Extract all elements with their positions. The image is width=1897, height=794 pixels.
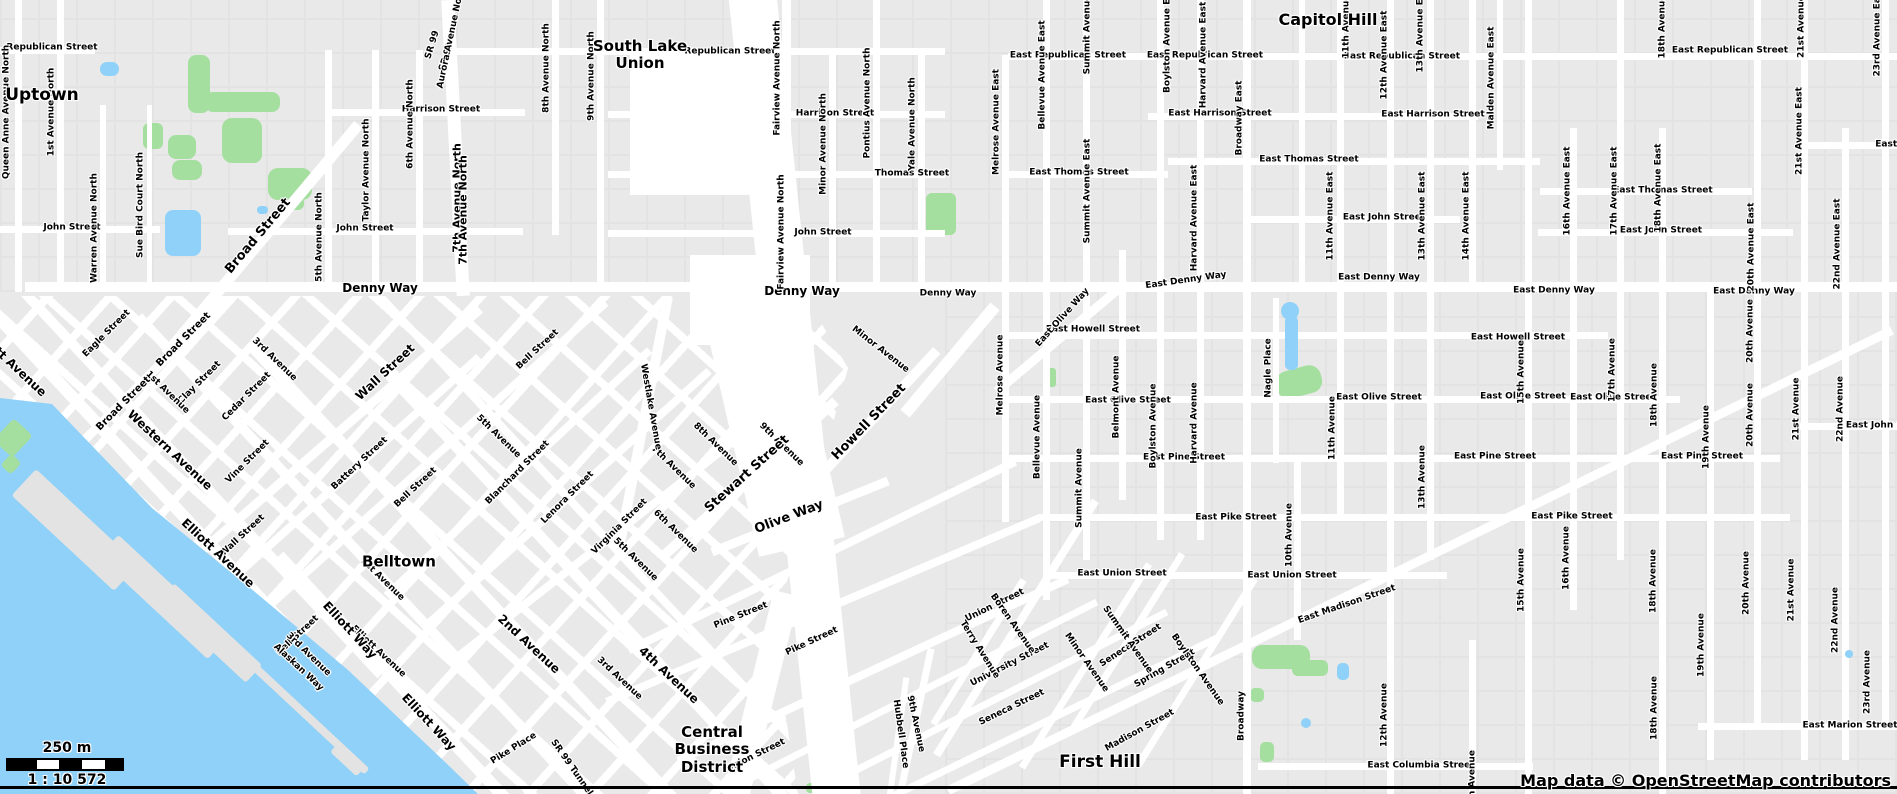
street-label: Minor Avenue xyxy=(850,325,911,375)
street-label: East Thomas Street xyxy=(1875,141,1897,150)
park xyxy=(1260,742,1274,762)
street-label: 12th Avenue East xyxy=(1381,11,1390,100)
street-label: 11th Avenue East xyxy=(1327,172,1336,261)
street-label: 20th Avenue xyxy=(1743,551,1752,615)
street-label: Bellevue Avenue xyxy=(1034,395,1043,479)
scale-segment xyxy=(59,760,82,769)
road xyxy=(1337,0,1344,520)
street-label: 10th Avenue xyxy=(1286,503,1295,567)
street-label: East Columbia Street xyxy=(1367,762,1474,771)
street-label: 12th Avenue xyxy=(1381,683,1390,747)
pond xyxy=(165,210,201,256)
street-label: 21st Avenue East xyxy=(1798,0,1807,58)
street-label: Belmont Avenue xyxy=(1113,356,1122,439)
street-label: East Thomas Street xyxy=(1029,169,1128,178)
street-label: 16th Avenue East xyxy=(1564,147,1573,236)
street-label: Harvard Avenue East xyxy=(1191,165,1200,272)
street-label: Denny Way xyxy=(342,282,418,294)
road xyxy=(147,105,152,292)
street-label: 8th Avenue North xyxy=(543,23,552,113)
park xyxy=(1250,688,1264,702)
street-label: East Denny Way xyxy=(1513,287,1595,296)
road xyxy=(552,0,559,235)
street-label: East Republican Street xyxy=(1344,53,1460,62)
street-label: Summit Avenue xyxy=(1076,448,1085,528)
street-label: 17th Avenue East xyxy=(1611,147,1620,236)
street-label: East Pike Street xyxy=(1531,513,1612,522)
scale-segment xyxy=(8,760,37,769)
street-label: 23rd Avenue xyxy=(1864,650,1873,714)
road xyxy=(1294,455,1301,640)
street-label: 20th Avenue East xyxy=(1748,203,1757,292)
street-label: 13th Avenue East xyxy=(1419,172,1428,261)
street-label: 13th Avenue East xyxy=(1417,0,1426,72)
street-label: Howell Street xyxy=(830,382,909,463)
street-label: Pontius Avenue North xyxy=(864,47,873,158)
pond xyxy=(1845,650,1853,658)
street-label: Broadway xyxy=(1238,691,1247,741)
neighborhood-label: First Hill xyxy=(1059,753,1141,773)
road xyxy=(1299,0,1305,292)
street-label: 11th Avenue xyxy=(1329,396,1338,460)
scale-bar-track xyxy=(6,758,124,771)
street-label: Republican Street xyxy=(684,48,775,57)
map-canvas[interactable]: Republican StreetRepublican StreetHarris… xyxy=(0,0,1897,794)
street-label: 1st Avenue North xyxy=(48,68,57,157)
street-label: Minor Avenue North xyxy=(820,93,829,195)
street-label: East Republican Street xyxy=(1672,47,1788,56)
street-label: 18th Avenue xyxy=(1651,363,1660,427)
street-label: 11th Avenue East xyxy=(1343,0,1352,58)
road xyxy=(873,0,880,292)
street-label: Taylor Avenue North xyxy=(363,118,372,221)
street-label: 22nd Avenue East xyxy=(1834,198,1843,289)
street-label: Denny Way xyxy=(920,290,977,299)
park xyxy=(143,123,163,149)
pond xyxy=(100,62,119,76)
road xyxy=(1754,0,1761,730)
park xyxy=(926,193,956,235)
neighborhood-label: Capitol Hill xyxy=(1278,11,1377,29)
street-label: Malden Avenue East xyxy=(1488,27,1497,130)
street-label: Boylston Avenue xyxy=(1150,384,1159,469)
street-label: 18th Avenue East xyxy=(1659,0,1668,58)
street-label: Harvard Avenue East xyxy=(1200,2,1209,109)
pond xyxy=(1337,663,1349,680)
park xyxy=(168,135,196,159)
scale-bar: 250 m 1 : 10 572 xyxy=(6,740,128,788)
road xyxy=(1882,0,1889,730)
street-label: 15th Avenue xyxy=(1518,340,1527,404)
street-label: John Street xyxy=(794,229,851,238)
street-label: 20th Avenue xyxy=(1747,383,1756,447)
street-label: East Denny Way xyxy=(1338,274,1420,283)
neighborhood-label: Central Business District xyxy=(675,724,750,776)
street-label: 18th Avenue xyxy=(1650,549,1659,613)
park xyxy=(1292,660,1328,676)
road xyxy=(690,255,810,345)
street-label: Yale Avenue North xyxy=(909,77,918,171)
street-label: 22nd Avenue xyxy=(1832,587,1841,653)
park xyxy=(228,143,262,163)
street-label: East Union Street xyxy=(1077,570,1166,579)
street-label: 18th Avenue East xyxy=(1655,144,1664,233)
street-label: Melrose Avenue East xyxy=(993,69,1002,175)
street-label: Summit Avenue East xyxy=(1084,0,1093,74)
street-label: East Thomas Street xyxy=(1259,156,1358,165)
street-label: Summit Avenue East xyxy=(1084,139,1093,244)
road xyxy=(1617,0,1624,560)
street-label: Fairview Avenue North xyxy=(778,174,787,289)
neighborhood-label: Uptown xyxy=(5,86,79,106)
road xyxy=(1497,0,1503,170)
street-label: 19th Avenue xyxy=(1703,405,1712,469)
street-label: 14th Avenue East xyxy=(1463,172,1472,261)
street-label: East Union Street xyxy=(1247,572,1336,581)
pond xyxy=(1301,718,1311,728)
road xyxy=(630,55,760,195)
street-label: 20th Avenue xyxy=(1747,299,1756,363)
street-label: Queen Anne Avenue North xyxy=(3,45,12,179)
street-label: East Republican Street xyxy=(1010,52,1126,61)
street-label: 23rd Avenue East xyxy=(1874,0,1883,77)
road xyxy=(1038,514,1790,521)
road xyxy=(829,50,836,292)
scale-segment xyxy=(105,760,122,769)
street-label: Fairview Avenue North xyxy=(774,20,783,135)
street-label: Nagle Place xyxy=(1265,338,1274,398)
road xyxy=(1707,292,1714,760)
street-label: East Pike Street xyxy=(1195,514,1276,523)
road xyxy=(416,50,423,292)
park xyxy=(205,92,280,112)
street-label: John Street xyxy=(336,225,393,234)
road xyxy=(1002,55,1009,522)
street-label: 21st Avenue xyxy=(1793,378,1802,441)
street-label: East Marion Street xyxy=(1802,722,1897,731)
street-label: 15th Avenue xyxy=(1518,548,1527,612)
street-label: East Olive Street xyxy=(1336,394,1422,403)
street-label: 16th Avenue xyxy=(1563,526,1572,590)
street-label: Broadway East xyxy=(1236,81,1245,156)
street-label: 6th Avenue North xyxy=(407,79,416,169)
street-label: 21st Avenue East xyxy=(1796,87,1805,175)
street-label: East Pine Street xyxy=(1454,453,1536,462)
street-label: 5th Avenue North xyxy=(316,192,325,282)
street-label: East Harrison Street xyxy=(1168,110,1271,119)
street-label: Republican Street xyxy=(6,44,97,53)
scale-segment xyxy=(37,760,60,769)
street-label: 19th Avenue xyxy=(1698,613,1707,677)
street-label: East John Street xyxy=(1846,422,1897,431)
scale-ratio-label: 1 : 10 572 xyxy=(6,772,128,788)
street-label: 22nd Avenue xyxy=(1837,376,1846,442)
street-label: Melrose Avenue xyxy=(997,335,1006,416)
pond xyxy=(1285,316,1298,370)
street-label: Sue Bird Court North xyxy=(137,152,146,258)
street-label: Warren Avenue North xyxy=(91,173,100,283)
road xyxy=(1427,0,1434,560)
street-label: East Harrison Street xyxy=(1381,111,1484,120)
road xyxy=(372,50,379,292)
street-label: 7th Avenue North xyxy=(458,155,469,265)
street-label: East John Street xyxy=(1343,214,1425,223)
road xyxy=(1273,298,1279,463)
road xyxy=(1842,128,1849,760)
map-attribution: Map data © OpenStreetMap contributors xyxy=(1520,771,1891,790)
street-label: Thomas Street xyxy=(875,170,949,179)
road xyxy=(100,105,106,292)
street-label: Harvard Avenue xyxy=(1191,382,1200,464)
street-label: Boylston Avenue East xyxy=(1164,0,1173,93)
street-label: 13th Avenue xyxy=(1419,445,1428,509)
scale-distance-label: 250 m xyxy=(6,740,128,756)
street-label: Bellevue Avenue East xyxy=(1039,20,1048,129)
street-label: 18th Avenue xyxy=(1651,676,1660,740)
street-label: 17th Avenue xyxy=(1609,338,1618,402)
street-label: 21st Avenue xyxy=(1788,559,1797,622)
scale-segment xyxy=(82,760,105,769)
park xyxy=(172,160,202,180)
neighborhood-label: South Lake Union xyxy=(593,38,687,73)
neighborhood-label: Belltown xyxy=(362,553,436,570)
